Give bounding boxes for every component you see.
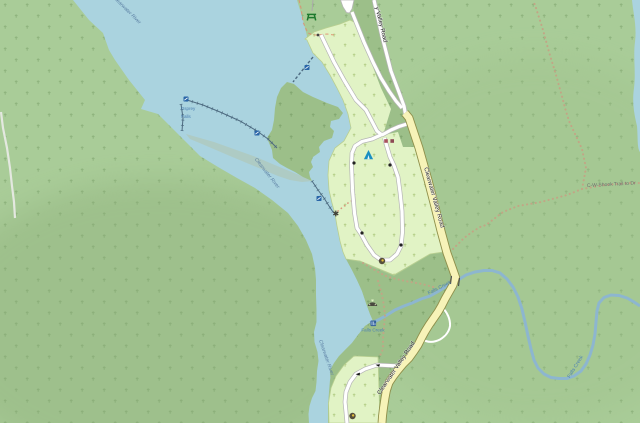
svg-text:Falls: Falls (181, 114, 191, 119)
svg-text:Osprey: Osprey (181, 106, 196, 111)
svg-text:Falls Creek: Falls Creek (361, 328, 385, 333)
